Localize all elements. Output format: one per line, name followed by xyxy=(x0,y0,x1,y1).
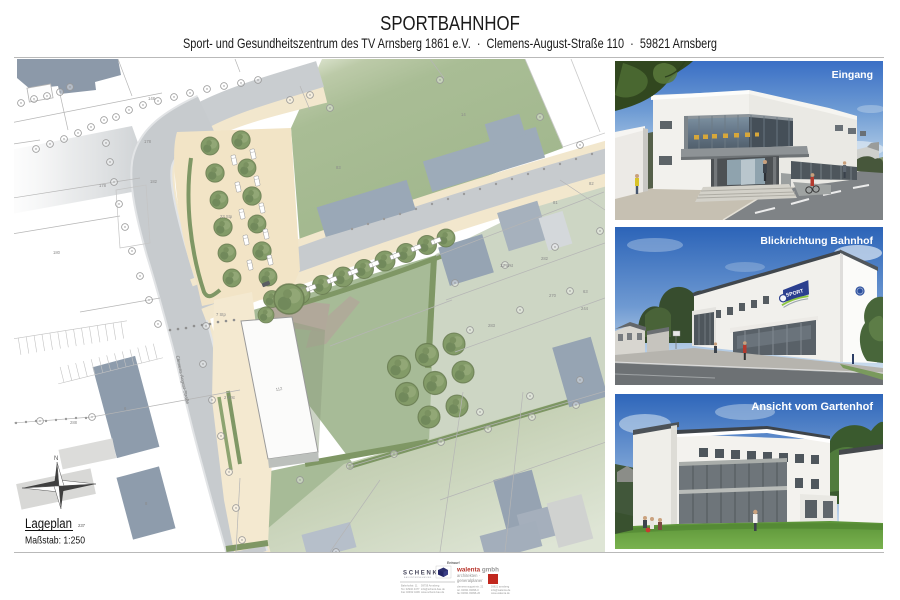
svg-text:www.walenta.de: www.walenta.de xyxy=(491,591,510,595)
svg-text:81: 81 xyxy=(553,200,558,205)
svg-text:SCHENK: SCHENK xyxy=(403,571,439,577)
svg-text:288: 288 xyxy=(70,420,78,425)
svg-text:270: 270 xyxy=(549,293,557,298)
svg-text:148: 148 xyxy=(148,96,156,101)
svg-text:237: 237 xyxy=(78,523,86,528)
svg-text:182: 182 xyxy=(150,179,158,184)
svg-text:2 Wst: 2 Wst xyxy=(224,395,236,400)
svg-text:83: 83 xyxy=(336,165,341,170)
svg-text:178: 178 xyxy=(99,183,107,188)
svg-text:14: 14 xyxy=(461,112,466,117)
svg-text:23 Stp: 23 Stp xyxy=(220,214,233,219)
svg-text:283: 283 xyxy=(488,323,496,328)
svg-text:282: 282 xyxy=(541,256,549,261)
svg-text:Entwurf: Entwurf xyxy=(447,561,460,565)
svg-text:generalplaner: generalplaner xyxy=(457,578,483,583)
svg-text:7 Stp: 7 Stp xyxy=(216,312,226,317)
svg-text:180: 180 xyxy=(53,250,61,255)
svg-text:Lageplan: Lageplan xyxy=(25,516,72,531)
svg-text:Eingang: Eingang xyxy=(832,69,873,81)
svg-text:82: 82 xyxy=(589,181,594,186)
svg-text:63: 63 xyxy=(583,289,588,294)
svg-text:BAUUNTERNEHMUNG: BAUUNTERNEHMUNG xyxy=(404,576,432,579)
svg-text:Ansicht vom Gartenhof: Ansicht vom Gartenhof xyxy=(751,401,873,413)
svg-text:www.schenk-bau.de: www.schenk-bau.de xyxy=(421,590,445,594)
svg-text:fax 02931 93996-20: fax 02931 93996-20 xyxy=(457,591,481,595)
svg-text:Maßstab: 1:250: Maßstab: 1:250 xyxy=(25,535,85,547)
svg-text:N: N xyxy=(54,456,58,462)
svg-text:178: 178 xyxy=(144,139,152,144)
svg-text:Fax 02932 4409: Fax 02932 4409 xyxy=(401,590,420,594)
svg-text:12 Wst: 12 Wst xyxy=(500,263,514,268)
svg-text:Blickrichtung Bahnhof: Blickrichtung Bahnhof xyxy=(760,235,873,247)
svg-text:244: 244 xyxy=(581,306,589,311)
